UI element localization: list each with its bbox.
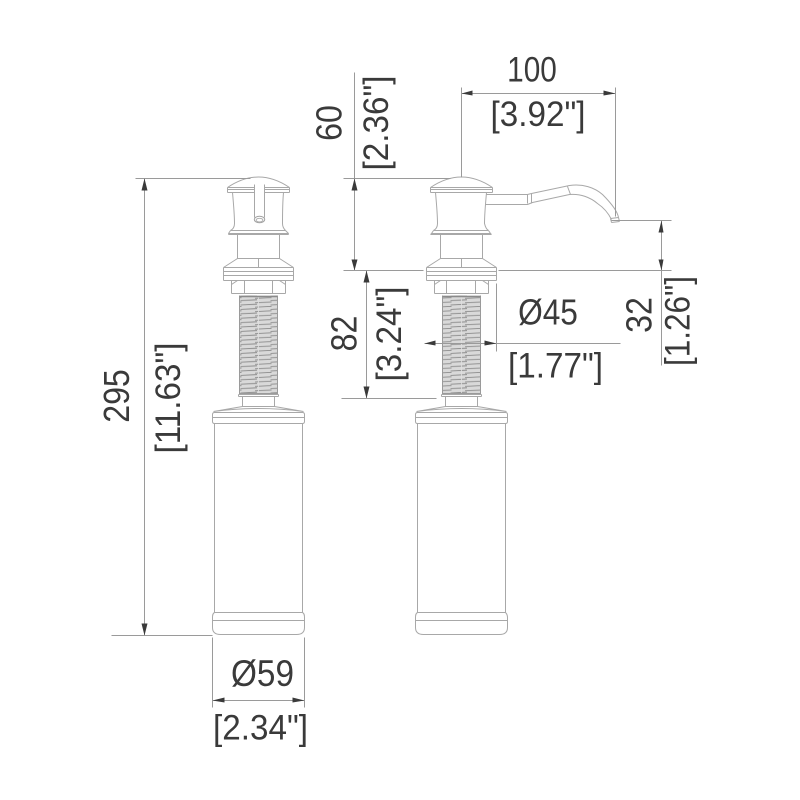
svg-text:[11.63"]: [11.63"] xyxy=(149,343,188,454)
svg-text:82: 82 xyxy=(325,316,365,352)
svg-text:60: 60 xyxy=(310,105,350,141)
svg-text:[2.36"]: [2.36"] xyxy=(357,76,396,171)
svg-text:[1.77"]: [1.77"] xyxy=(508,347,603,386)
svg-text:[1.26"]: [1.26"] xyxy=(659,276,698,366)
svg-text:[3.24"]: [3.24"] xyxy=(370,287,409,382)
svg-text:Ø45: Ø45 xyxy=(518,293,578,333)
svg-text:100: 100 xyxy=(507,50,557,89)
svg-text:295: 295 xyxy=(97,369,137,423)
svg-text:[3.92"]: [3.92"] xyxy=(491,95,586,134)
svg-text:Ø59: Ø59 xyxy=(231,654,294,695)
svg-text:[2.34"]: [2.34"] xyxy=(213,709,308,748)
svg-text:32: 32 xyxy=(620,297,660,333)
